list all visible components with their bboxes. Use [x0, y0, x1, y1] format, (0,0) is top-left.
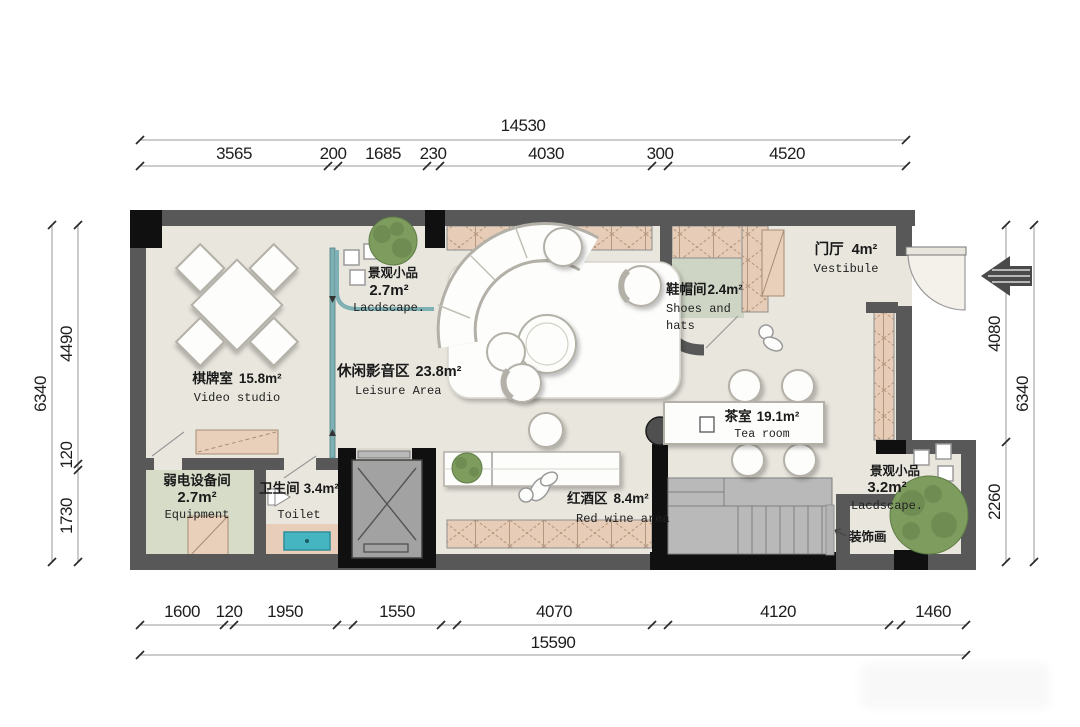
label-shoes-en1: Shoes and: [666, 302, 731, 316]
label-leisure: 休闲影音区23.8m²: [336, 362, 462, 380]
bar-plant-symbol: [452, 453, 482, 483]
label-video-studio-en: Video studio: [194, 391, 280, 405]
entrance-arrow-icon: [981, 256, 1032, 296]
cabinet-tea-room-wall: [874, 310, 894, 440]
dim-top-seg-3: 230: [420, 144, 447, 163]
dim-bottom-seg-5: 4120: [760, 602, 796, 621]
leisure-chair-2: [621, 266, 661, 306]
label-landscape-top-en: Lacdscape.: [353, 301, 425, 315]
label-red-wine-en: Red wine area: [576, 512, 670, 526]
label-decor-painting: 装饰画: [848, 529, 887, 544]
label-equipment-area: 2.7m²: [177, 489, 216, 506]
leisure-chair-1: [544, 228, 582, 266]
label-landscape-bottom-en: Lacdscape.: [851, 499, 923, 513]
label-equipment: 弱电设备间: [163, 472, 231, 488]
cabinet-vestibule-tall: [762, 230, 784, 296]
dim-bottom-seg-6: 1460: [915, 602, 951, 621]
cabinet-shoes-closet: [672, 226, 742, 258]
dim-top-seg-1: 200: [320, 144, 347, 163]
entrance: [906, 247, 1032, 310]
tea-chair-2: [782, 370, 814, 402]
sink: [284, 532, 330, 550]
dim-left-overall: 6340: [31, 376, 50, 412]
cabinet-video-studio: [196, 430, 278, 454]
dim-bottom-seg-3: 1550: [379, 602, 415, 621]
tree-symbol-top: [369, 217, 417, 265]
column-top-mid: [425, 210, 445, 248]
label-leisure-en: Leisure Area: [355, 384, 441, 398]
column-extension: [876, 440, 906, 454]
wall-top: [130, 210, 915, 226]
dim-left-seg-0: 4490: [57, 326, 76, 362]
dim-top-seg-2: 1685: [365, 144, 401, 163]
decor-painting-strip: [826, 505, 834, 555]
leisure-chair-3: [503, 364, 541, 402]
label-landscape-top: 景观小品: [368, 265, 418, 280]
watermark: [860, 663, 1050, 709]
wall-cap-tea-cabinet: [866, 302, 898, 313]
label-shoes-en2: hats: [666, 319, 695, 333]
dim-right-seg-1: 2260: [985, 484, 1004, 520]
label-tea-room-en: Tea room: [734, 428, 789, 441]
floor-plan-canvas: 14530 3565 200 1685 230 4030 300 4520: [0, 0, 1080, 727]
cabinet-equipment-room: [188, 516, 228, 558]
tea-chair-4: [784, 444, 816, 476]
dim-right-overall: 6340: [1013, 376, 1032, 412]
label-landscape-bottom-area: 3.2m²: [867, 479, 906, 496]
dim-top-seg-5: 300: [647, 144, 674, 163]
label-landscape-bottom: 景观小品: [870, 463, 920, 478]
dim-left-seg-2: 1730: [57, 498, 76, 534]
dim-bottom-seg-1: 120: [216, 602, 243, 621]
label-toilet-en: Toilet: [277, 508, 320, 522]
dim-left-seg-1: 120: [57, 442, 76, 469]
label-equipment-en: Equipment: [165, 508, 230, 522]
dim-top-seg-0: 3565: [216, 144, 252, 163]
dim-bottom-seg-4: 4070: [536, 602, 572, 621]
dimension-bottom: 1600 120 1950 1550 4070 4120 1460 15590: [136, 602, 970, 659]
sliding-glass-door: [330, 248, 335, 458]
entrance-door-leaf: [906, 247, 966, 255]
wall-right-mid: [896, 306, 912, 446]
label-landscape-top-area: 2.7m²: [369, 282, 408, 299]
dim-right-seg-0: 4080: [985, 316, 1004, 352]
dim-bottom-overall: 15590: [531, 633, 576, 652]
label-vestibule-en: Vestibule: [814, 262, 879, 276]
entrance-door-swing: [908, 253, 965, 310]
label-shoes: 鞋帽间2.4m²: [666, 281, 743, 297]
tea-chair-1: [729, 370, 761, 402]
column-top-left: [130, 210, 162, 248]
wall-left: [130, 210, 146, 570]
dimension-top: 14530 3565 200 1685 230 4030 300 4520: [136, 116, 910, 170]
dim-top-overall: 14530: [501, 116, 546, 135]
dim-bottom-seg-0: 1600: [164, 602, 200, 621]
label-toilet: 卫生间3.4m²: [259, 480, 339, 496]
leisure-chair-4: [529, 413, 563, 447]
dim-top-seg-4: 4030: [528, 144, 564, 163]
dim-top-seg-6: 4520: [769, 144, 805, 163]
tea-chair-3: [732, 444, 764, 476]
dim-bottom-seg-2: 1950: [267, 602, 303, 621]
elevator: [338, 448, 436, 568]
dimension-left: 6340 4490 120 1730: [31, 221, 82, 566]
label-tea-room: 茶室19.1m²: [724, 408, 800, 424]
